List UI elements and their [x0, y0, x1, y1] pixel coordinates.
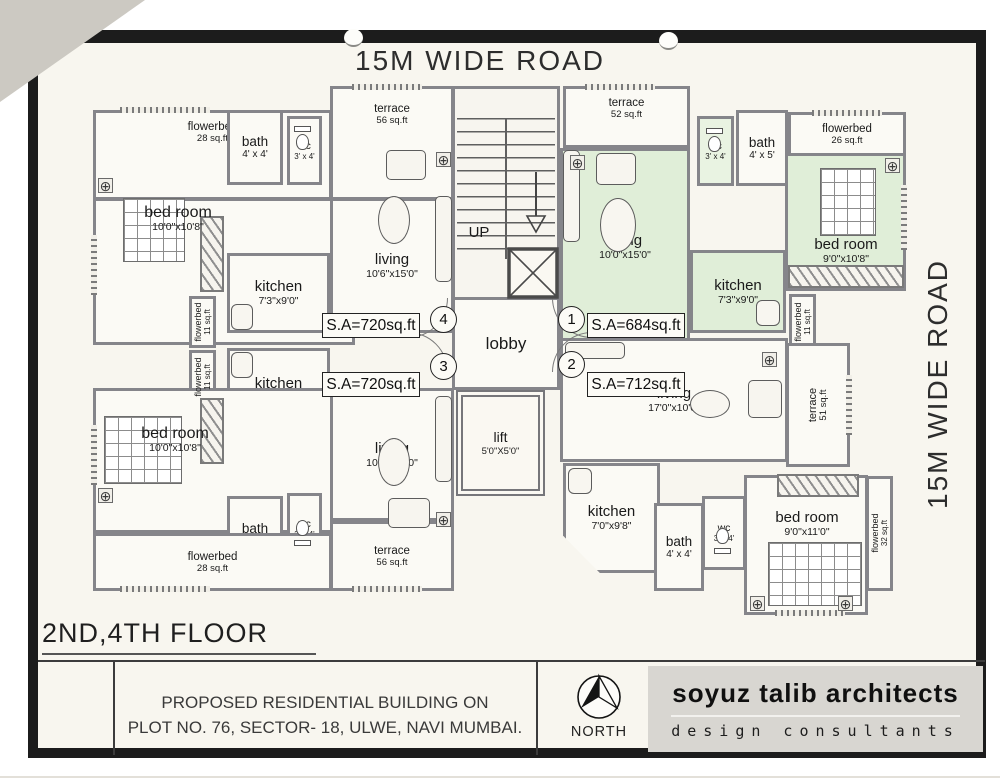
toilet-pan: [708, 136, 721, 152]
kitchen-sink: [756, 300, 780, 326]
firm-name: soyuz talib architects: [672, 678, 958, 709]
lobby: lobby: [452, 300, 560, 390]
kitchen-sink: [231, 304, 253, 330]
flat2-bedroom-label: bed room 9'0"x11'0": [746, 510, 868, 538]
armchair: [388, 498, 430, 528]
column-marker-icon: ⊕: [750, 596, 765, 611]
toilet-pan: [296, 520, 309, 536]
armchair: [596, 153, 636, 185]
stairs-up-label: UP: [462, 224, 496, 241]
lobby-label: lobby: [486, 336, 527, 352]
project-title-line1: PROPOSED RESIDENTIAL BUILDING ON: [161, 693, 488, 713]
armchair: [748, 380, 782, 418]
flat1-flowerbed: flowerbed 26 sq.ft: [788, 112, 906, 156]
project-title-line2: PLOT NO. 76, SECTOR- 18, ULWE, NAVI MUMB…: [128, 718, 523, 738]
north-label: NORTH: [571, 724, 627, 740]
stair-direction-arrow-icon: [522, 172, 550, 234]
armchair: [386, 150, 426, 180]
flat3-terrace: terrace 56 sq.ft: [330, 521, 454, 591]
column-marker-icon: ⊕: [885, 158, 900, 173]
toilet-tank: [294, 540, 311, 546]
flat4-bath: bath 4' x 4': [227, 110, 283, 185]
window-sill: [91, 425, 97, 485]
north-arrow-icon: [574, 672, 624, 722]
duct-shaft-icon: [507, 247, 559, 299]
window-sill: [812, 110, 882, 116]
flat1-number: 1: [558, 306, 585, 333]
flat3-flowerbed-side-label: flowerbed 11 sq.ft: [186, 340, 220, 414]
column-marker-icon: ⊕: [436, 512, 451, 527]
flat1-bath: bath 4' x 5': [736, 110, 788, 186]
flat4-bedroom-label: bed room 10'0"x10'8": [103, 205, 253, 233]
flat3-area-box: S.A=720sq.ft: [322, 372, 420, 397]
flat2-bath: bath 4' x 4': [654, 503, 704, 591]
table: [690, 390, 730, 418]
sofa: [435, 196, 452, 282]
toilet-tank: [706, 128, 723, 134]
toilet-pan: [296, 134, 309, 150]
flat3-bedroom-label: bed room 10'0"x10'8": [100, 426, 250, 454]
column-marker-icon: ⊕: [838, 596, 853, 611]
titleblock-divider: [113, 662, 115, 755]
window-sill: [585, 84, 655, 90]
architect-panel: soyuz talib architects design consultant…: [648, 666, 983, 752]
flat1-area-box: S.A=684sq.ft: [587, 313, 685, 338]
titleblock-top-rule: [38, 660, 985, 662]
stair-flight-divider: [505, 118, 507, 259]
window-sill: [91, 235, 97, 295]
kitchen-sink: [568, 468, 592, 494]
column-marker-icon: ⊕: [436, 152, 451, 167]
window-sill: [352, 84, 422, 90]
flat4-number: 4: [430, 306, 457, 333]
lift: lift 5'0"X5'0": [456, 390, 545, 496]
scanned-floor-plan-page: { "roads": { "top": "15M WIDE ROAD", "ri…: [0, 0, 1000, 784]
window-sill: [120, 107, 210, 113]
window-sill: [846, 375, 852, 435]
road-label-top: 15M WIDE ROAD: [355, 45, 605, 77]
table: [600, 198, 636, 252]
flat4-terrace: terrace 56 sq.ft: [330, 86, 454, 200]
punch-hole-icon: [344, 29, 363, 47]
flat2-window-hatch: [777, 474, 859, 497]
table: [378, 196, 410, 244]
column-marker-icon: ⊕: [570, 155, 585, 170]
punch-hole-icon: [659, 32, 678, 50]
floor-label: 2ND,4TH FLOOR: [42, 618, 316, 655]
firm-subtitle: design consultants: [671, 715, 960, 740]
flat4-area-box: S.A=720sq.ft: [322, 313, 420, 338]
column-marker-icon: ⊕: [98, 488, 113, 503]
toilet-tank: [714, 548, 731, 554]
window-sill: [352, 586, 422, 592]
flat2-number: 2: [558, 351, 585, 378]
scan-edge-line: [0, 776, 1000, 778]
flat2-flowerbed-side-label: flowerbed 32 sq.ft: [863, 496, 897, 570]
table: [378, 438, 410, 486]
flat1-flowerbed-side-label: flowerbed 11 sq.ft: [786, 285, 820, 359]
window-sill: [775, 610, 845, 616]
column-marker-icon: ⊕: [98, 178, 113, 193]
sofa: [435, 396, 452, 482]
toilet-tank: [294, 126, 311, 132]
lift-dims: 5'0"X5'0": [482, 446, 520, 457]
window-sill: [120, 586, 210, 592]
flat1-terrace: terrace 52 sq.ft: [563, 86, 690, 148]
kitchen-sink: [231, 352, 253, 378]
lift-label: lift: [494, 429, 508, 445]
north-indicator: NORTH: [545, 672, 653, 752]
toilet-pan: [716, 528, 729, 544]
page-curl-artifact: [0, 0, 145, 102]
flat1-bed: [820, 168, 876, 236]
flat3-number: 3: [430, 353, 457, 380]
titleblock-divider: [536, 662, 538, 755]
road-label-right: 15M WIDE ROAD: [922, 279, 954, 509]
flat1-bedroom-label: bed room 9'0"x10'8": [787, 237, 905, 265]
project-title: PROPOSED RESIDENTIAL BUILDING ON PLOT NO…: [120, 684, 530, 746]
column-marker-icon: ⊕: [762, 352, 777, 367]
flat2-area-box: S.A=712sq.ft: [587, 372, 685, 397]
flat2-terrace-label: terrace 51 sq.ft: [801, 367, 835, 443]
